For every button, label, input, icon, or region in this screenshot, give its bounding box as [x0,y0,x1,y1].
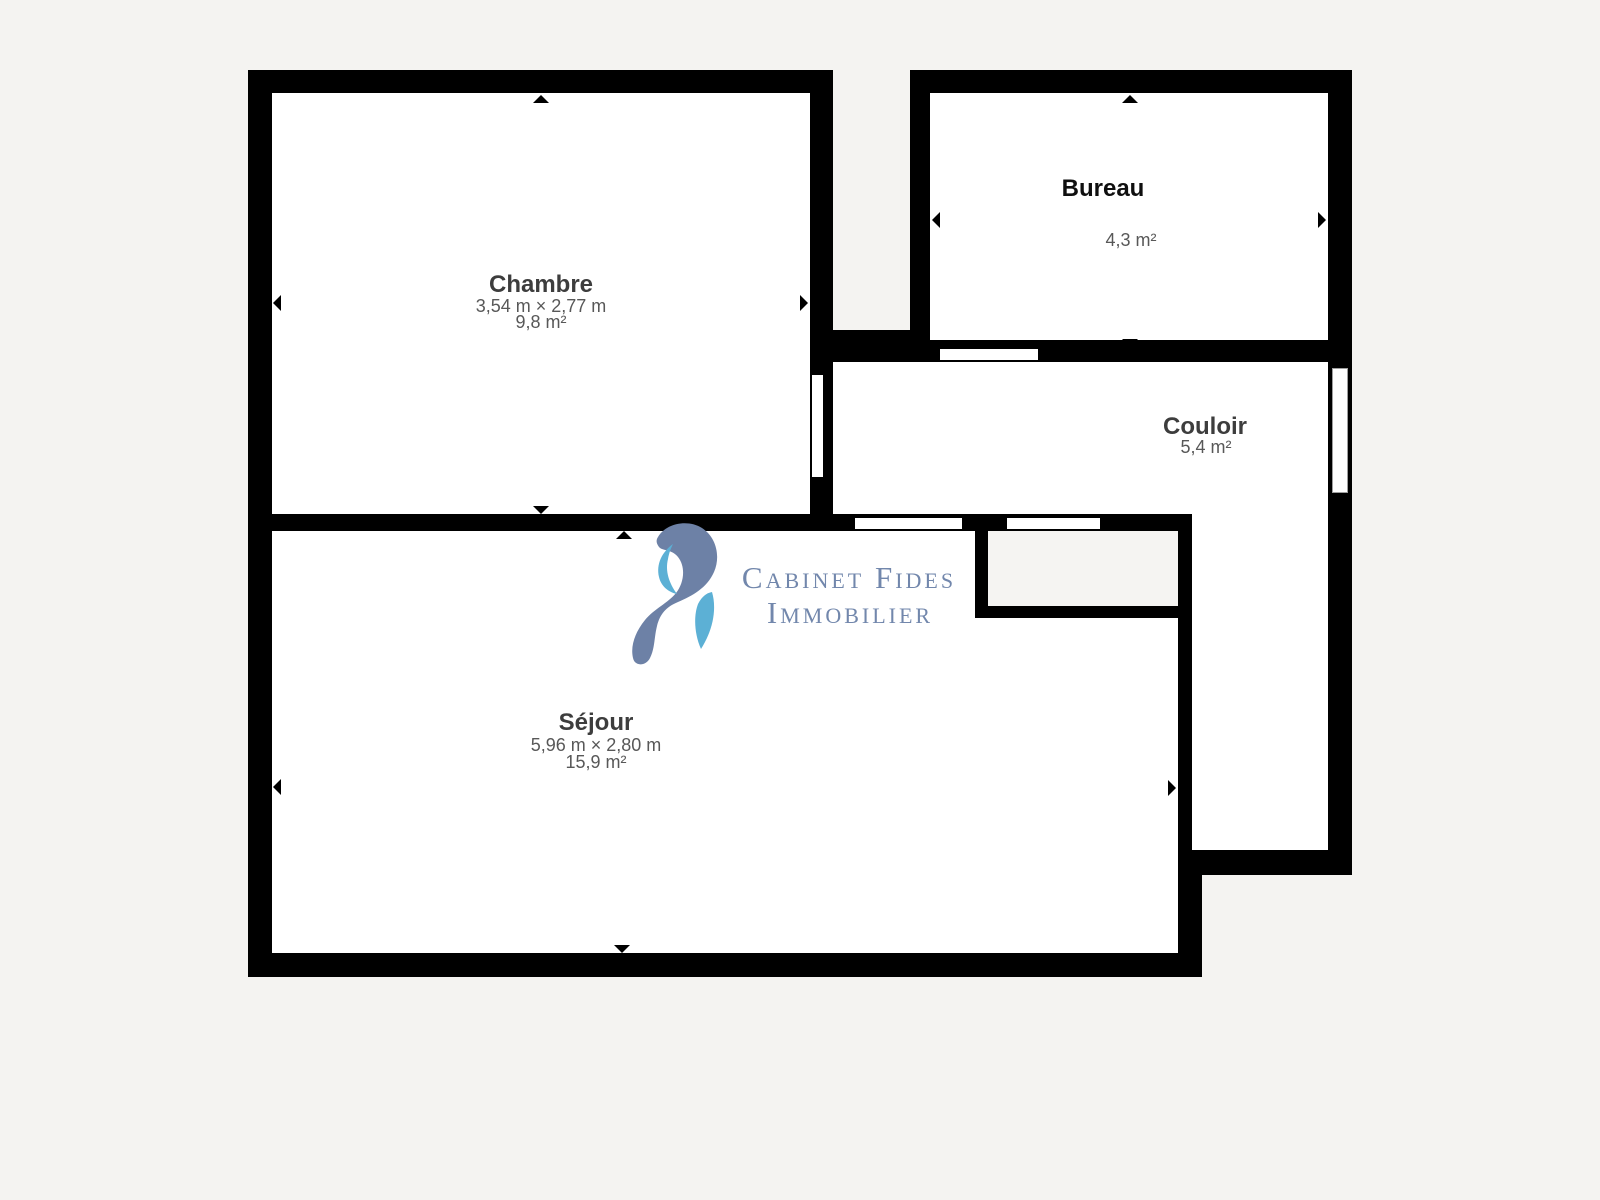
door-opening-sejour [855,518,962,529]
door-opening-bureau [940,349,1038,360]
room-area-bureau: 4,3 m² [1105,230,1156,251]
wall-corridor-bottom [1178,850,1352,875]
wall-bureau-top [910,70,1352,93]
logo-text-line1: Cabinet Fides [742,560,956,596]
room-area-chambre: 9,8 m² [515,312,566,333]
wall-sejour-bottom [248,953,1202,977]
room-name-sejour: Séjour [559,709,634,737]
logo-text-line2: Immobilier [767,595,933,631]
dim-arrow-up-chambre [533,95,549,103]
room-area-couloir: 5,4 m² [1180,437,1231,458]
wall-closet-left [975,531,988,618]
floor-plan: Chambre 3,54 m × 2,77 m 9,8 m² Bureau 4,… [0,0,1600,1200]
wall-closet-bottom [975,606,1192,618]
dim-arrow-down-sejour [614,945,630,953]
wall-chambre-top [248,70,833,93]
dim-arrow-right-chambre [800,295,808,311]
logo-swirl-icon [612,505,732,665]
door-opening-chambre [812,375,823,477]
door-opening-closet [1007,518,1100,529]
wall-sejour-right-upper [1178,514,1192,850]
dim-arrow-down-bureau [1122,339,1138,347]
dim-arrow-right-bureau [1318,212,1326,228]
dim-arrow-up-bureau [1122,95,1138,103]
dim-arrow-left-chambre [273,295,281,311]
wall-gap-closure [833,330,910,362]
dim-arrow-left-bureau [932,212,940,228]
room-name-chambre: Chambre [489,271,593,299]
room-name-bureau: Bureau [1062,175,1145,203]
window-couloir [1332,368,1348,493]
room-bureau [930,93,1328,347]
dim-arrow-right-sejour [1168,780,1176,796]
wall-bureau-left [910,70,930,360]
room-area-sejour: 15,9 m² [565,752,626,773]
dim-arrow-down-chambre [533,506,549,514]
dim-arrow-left-sejour [273,779,281,795]
closet-area [988,531,1178,606]
